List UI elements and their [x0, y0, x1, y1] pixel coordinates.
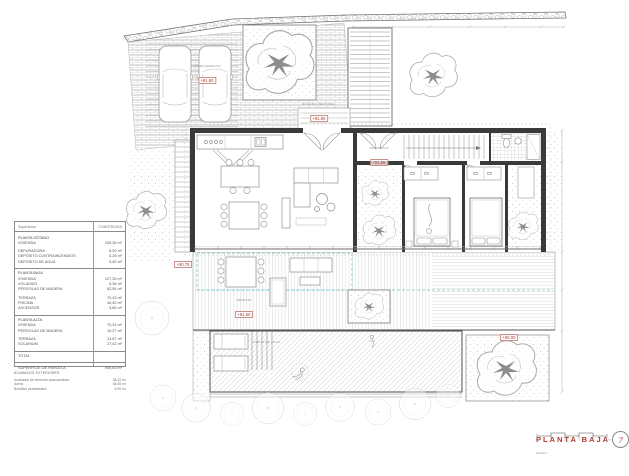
table-body: PLANTA SÓTANO VIVIENDA105,35 m² DEPURADO… — [15, 232, 125, 372]
level-marker-entrance: ACCESO PEATONAL +81.80 — [302, 103, 336, 125]
level-marker-hall: VESTÍBULO +81.65 — [369, 147, 389, 169]
sofa — [294, 168, 338, 183]
table-row: PLANTA BAJA — [15, 268, 125, 277]
table-row: ASCENSOR5,85 m² — [15, 306, 125, 311]
nightstand — [406, 241, 412, 247]
table-row: VIVIENDA105,35 m² — [15, 241, 125, 246]
svg-text:5 m: 5 m — [605, 438, 611, 442]
sun-lounger — [214, 356, 248, 371]
level-marker-carport: APARCAMIENTO +81.80 — [193, 65, 220, 87]
north-planter — [243, 25, 316, 100]
svg-text:2: 2 — [564, 438, 566, 442]
entry-stairs — [348, 28, 392, 126]
floor-plan-sheet: APARCAMIENTO +81.80 ACCESO PEATONAL +81.… — [0, 0, 629, 476]
svg-text:0: 0 — [536, 438, 538, 442]
level-label: ACCESO PEATONAL — [302, 103, 336, 107]
notes-title: ACABADOS EXTERIORES — [14, 371, 126, 375]
tv-console — [296, 218, 326, 225]
svg-text:4: 4 — [592, 438, 594, 442]
level-value: +80.05 — [500, 334, 518, 341]
bathroom — [491, 133, 541, 161]
west-garden — [126, 140, 190, 335]
table-row: DEPÓSITO DE AGUA9,40 m² — [15, 260, 125, 265]
cooktop — [205, 141, 208, 144]
table-header-left: Superficies — [18, 225, 36, 229]
graphic-scale: ESCALA 0 1 2 3 4 5 m — [536, 452, 629, 455]
notes-row: Bordillos perimetrales9,90 m² — [14, 387, 126, 392]
table-row: PÉRGOLAS DE MADERA62,54 m² — [15, 287, 125, 292]
shrub — [135, 301, 169, 335]
scale-bar: 0 1 2 3 4 5 m — [536, 431, 616, 441]
sun-lounger — [214, 334, 248, 349]
level-value: +81.80 — [310, 115, 328, 122]
house — [185, 124, 550, 255]
table-row-plot-area: SUPERFICIE DE PARCELA900,00 m² — [15, 362, 125, 371]
level-value: +81.80 — [198, 77, 216, 84]
level-label: APARCAMIENTO — [193, 65, 220, 69]
pillow — [487, 238, 500, 244]
level-marker-terrace: TERRAZA +81.50 — [235, 299, 253, 321]
nightstand — [452, 241, 458, 247]
title-block: PLANTA BAJA 7 ESCALA 0 1 2 3 4 5 m — [536, 431, 629, 455]
table-row: PLANTA ALTA — [15, 315, 125, 324]
level-label: VESTÍBULO — [369, 147, 389, 151]
washbasin — [515, 138, 521, 144]
pillow — [433, 238, 447, 244]
southeast-planter — [466, 335, 549, 401]
bedroom-2 — [470, 198, 502, 246]
pool-water-label: LÁMINA DE AGUA — [251, 341, 280, 345]
car — [157, 46, 192, 122]
fireplace — [282, 198, 290, 228]
interior-patio — [357, 165, 402, 248]
level-value: +81.50 — [235, 311, 253, 318]
pillow — [472, 238, 485, 244]
table-column-divider — [93, 222, 94, 366]
svg-text:1: 1 — [550, 438, 552, 442]
table-header-right: CONSTRUIDA — [98, 225, 122, 229]
toilet — [502, 135, 511, 139]
east-patio — [508, 165, 541, 252]
svg-text:3: 3 — [578, 438, 580, 442]
coffee-table — [327, 203, 335, 211]
table-row-total: TOTAL — [15, 351, 125, 360]
area-schedule-table: Superficies CONSTRUIDA PLANTA SÓTANO VIV… — [14, 221, 126, 367]
scale-label: ESCALA — [536, 452, 547, 455]
pouf — [317, 194, 328, 205]
east-garden-strip — [546, 131, 564, 251]
kitchen-island — [221, 166, 259, 187]
level-marker-west: +80.75 — [174, 253, 192, 271]
table-header: Superficies CONSTRUIDA — [15, 222, 125, 232]
level-value: +80.75 — [174, 261, 192, 268]
table-row: PÉRGOLAS DE MADERA19,27 m² — [15, 329, 125, 334]
level-value: +81.65 — [370, 159, 388, 166]
level-label: TERRAZA — [235, 299, 253, 303]
terrace-planter — [348, 290, 390, 323]
tree — [410, 53, 457, 96]
table-row: SOLARIUM27,02 m² — [15, 342, 125, 347]
level-label: LÁMINA DE AGUA — [251, 341, 280, 345]
exterior-finishes-notes: ACABADOS EXTERIORES Acabados de cemento … — [14, 371, 126, 392]
bedroom-1 — [406, 198, 458, 247]
planter-box — [518, 167, 534, 198]
pillow — [417, 238, 431, 244]
level-marker-garden: +80.05 — [500, 326, 518, 344]
